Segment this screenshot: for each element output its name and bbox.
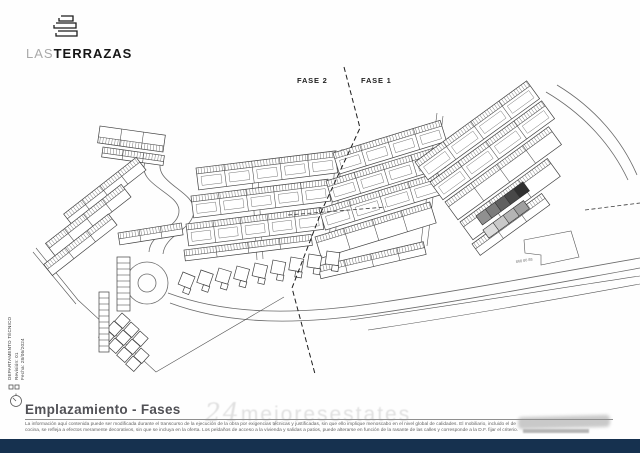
disclaimer-line-1: La información aquí contenida puede ser …: [25, 422, 530, 428]
building-band: [118, 223, 183, 245]
main-road-upper: [168, 258, 640, 311]
disclaimer-text: La información aquí contenida puede ser …: [25, 422, 530, 433]
cottage-unit: [288, 257, 305, 278]
cottage-unit: [195, 270, 214, 292]
sidebar-department: DEPARTAMENTO TÉCNICO: [7, 317, 12, 380]
cottage-unit: [251, 263, 269, 284]
road-parallel-1: [350, 276, 640, 320]
cottage-unit: [306, 254, 322, 275]
footer-bar: [0, 439, 640, 453]
site-plan-drawing: 868 86 88: [0, 0, 640, 453]
road-number-label: 868 86 88: [516, 257, 533, 264]
sheet-title: Emplazamiento - Fases: [25, 402, 181, 417]
roundabout-inner: [138, 274, 156, 292]
compass-icon: [9, 385, 22, 407]
road-parallel-2: [368, 284, 640, 330]
sidebar-revision: Revisión: 01: [14, 352, 19, 380]
watermark-logo-underline: [523, 429, 589, 433]
buildings-group: [44, 81, 562, 372]
title-underline: [25, 419, 613, 420]
cottage-unit: [213, 268, 232, 290]
cottage-unit: [269, 260, 286, 281]
road-topright-2: [546, 92, 628, 180]
plan-sheet-page: 868 86 88 LASTERRAZAS FASE 2 FASE 1 DEPA…: [0, 0, 640, 453]
roundabout-outer: [126, 262, 168, 304]
cottage-unit: [176, 272, 196, 295]
stairs-strip: [99, 292, 109, 352]
label-fase-1: FASE 1: [361, 76, 392, 85]
cottage-unit: [232, 266, 250, 288]
terraces-logo-icon: [54, 16, 77, 36]
sidebar-date: Fecha: 28/06/2024: [20, 338, 25, 380]
logo-word-light: LAS: [26, 46, 54, 61]
watermark-logo-blob: [518, 415, 610, 429]
section-dashed-right: [585, 203, 640, 210]
stairs-strip: [117, 257, 130, 311]
disclaimer-line-2: cocina, se refleja a efectos meramente d…: [25, 428, 530, 434]
logo-wordmark: LASTERRAZAS: [26, 46, 132, 61]
logo-word-bold: TERRAZAS: [54, 46, 133, 61]
road-topright-1: [557, 85, 637, 175]
label-fase-2: FASE 2: [297, 76, 328, 85]
